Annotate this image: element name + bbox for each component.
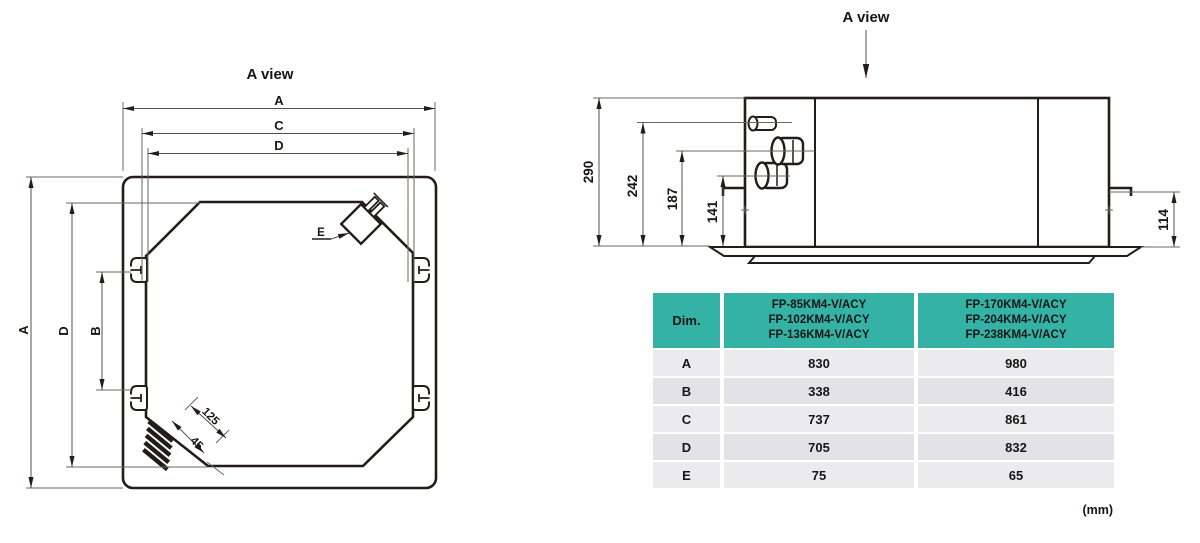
label-114: 114 xyxy=(1156,209,1171,231)
table-row-C-value2: 861 xyxy=(918,406,1114,432)
hanger-bracket-top-left xyxy=(130,258,147,282)
air-outlet-octagon xyxy=(146,202,413,466)
label-290: 290 xyxy=(581,161,596,184)
table-header-dim: Dim. xyxy=(653,293,720,348)
table-row-D-dim: D xyxy=(653,434,720,460)
table-header-models-group2: FP-170KM4-V/ACY FP-204KM4-V/ACY FP-238KM… xyxy=(918,293,1114,348)
table-row-E-dim: E xyxy=(653,462,720,488)
hanger-bracket-top-right xyxy=(413,258,430,282)
label-B: B xyxy=(88,326,103,335)
label-C: C xyxy=(274,118,284,133)
ceiling-panel xyxy=(710,247,1141,256)
table-row-A-dim: A xyxy=(653,350,720,376)
side-view-title: A view xyxy=(843,9,890,26)
table-row-A-value2: 980 xyxy=(918,350,1114,376)
table-row-B-value2: 416 xyxy=(918,378,1114,404)
label-E: E xyxy=(317,227,325,239)
hanger-bracket-bottom-right xyxy=(413,386,430,410)
table-row-B-dim: B xyxy=(653,378,720,404)
ceiling-panel-lip xyxy=(749,256,1095,263)
side-view: A view xyxy=(581,9,1180,263)
plan-view: A view xyxy=(16,66,436,488)
hanger-hook-left xyxy=(723,188,745,196)
table-row-D-value2: 832 xyxy=(918,434,1114,460)
table-row-C-dim: C xyxy=(653,406,720,432)
dimension-table: Dim. FP-85KM4-V/ACY FP-102KM4-V/ACY FP-1… xyxy=(653,293,1113,488)
table-header-models-group1: FP-85KM4-V/ACY FP-102KM4-V/ACY FP-136KM4… xyxy=(724,293,914,348)
label-D-top: D xyxy=(274,138,283,153)
table-row-E-value1: 75 xyxy=(724,462,914,488)
unit-note: (mm) xyxy=(653,503,1113,517)
label-A-top: A xyxy=(274,93,284,108)
label-D-left: D xyxy=(56,326,71,335)
table-row-D-value1: 705 xyxy=(724,434,914,460)
hanger-bracket-bottom-left xyxy=(130,386,147,410)
unit-body-outline xyxy=(745,98,1109,247)
table-row-C-value1: 737 xyxy=(724,406,914,432)
label-242: 242 xyxy=(625,175,640,198)
table-row-B-value1: 338 xyxy=(724,378,914,404)
label-141: 141 xyxy=(705,200,720,223)
label-187: 187 xyxy=(665,188,680,211)
table-row-E-value2: 65 xyxy=(918,462,1114,488)
spec-sheet: A view xyxy=(0,0,1200,543)
table-row-A-value1: 830 xyxy=(724,350,914,376)
label-A-left: A xyxy=(16,325,31,335)
plan-view-title: A view xyxy=(247,66,294,83)
drain-pipe-end xyxy=(749,117,758,131)
